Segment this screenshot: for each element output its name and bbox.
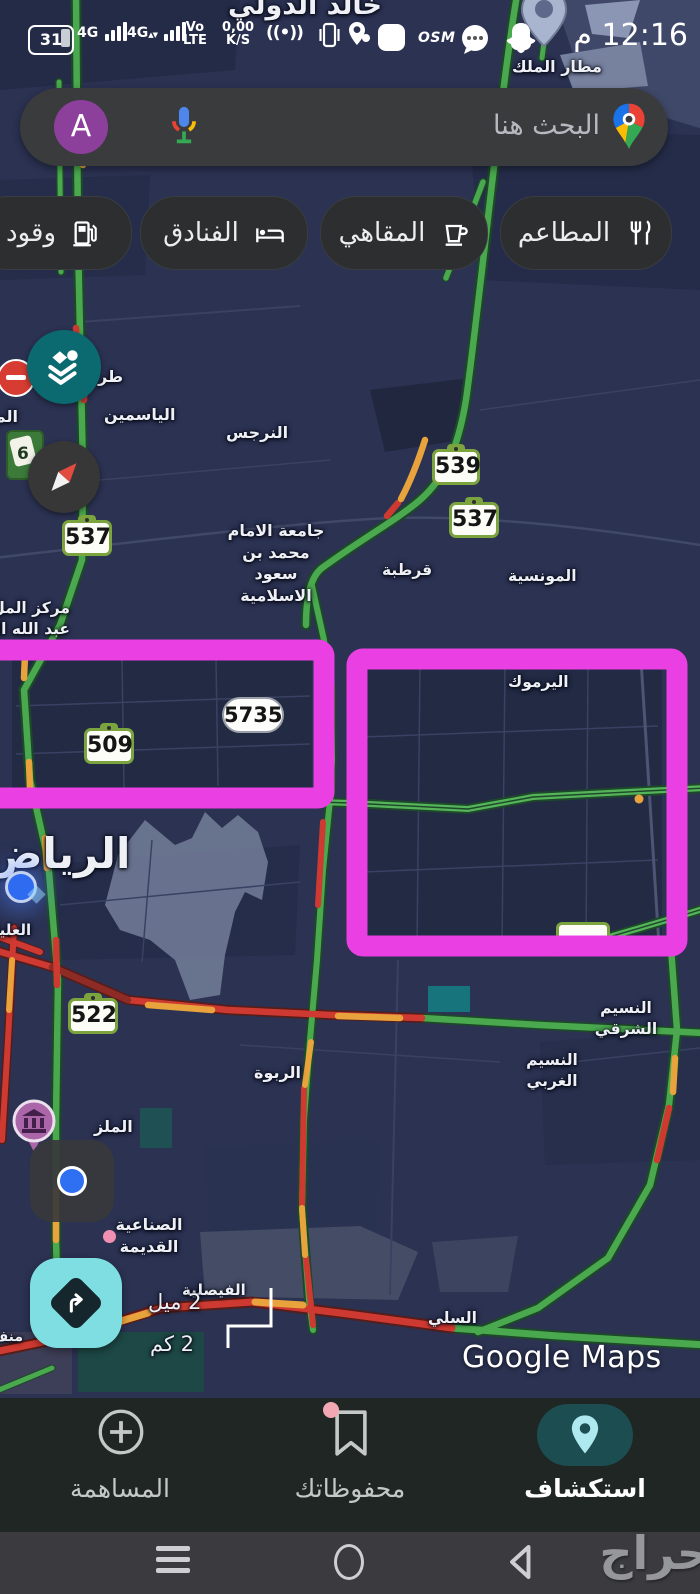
map-label-rabwah: الربوة [254,1062,301,1084]
google-maps-app: خالد الدولي مطار الملك طر الم الياسمين ا… [0,0,700,1594]
recents-button[interactable] [156,1546,190,1573]
nav-item-saved[interactable]: محفوظاتك [285,1402,415,1528]
my-location-dot-icon [57,1166,87,1196]
road-shield-522: 522 [68,998,118,1034]
google-maps-pin-icon [610,102,648,152]
volte-icon: VoLTE [183,21,207,47]
mic-icon[interactable] [166,104,202,150]
map-label-old-industrial: الصناعية القديمة [106,1214,192,1257]
directions-button[interactable] [30,1258,122,1348]
battery-icon: 31 [28,25,74,55]
snapchat-notification-icon [504,21,538,57]
map-label-malaz: الملز [94,1116,133,1138]
map-label-kafd: مركز المل عبد الله ال [0,598,70,640]
chip-restaurants[interactable]: المطاعم [500,196,672,270]
layers-button[interactable] [27,330,101,404]
map-label-bottom-partial: منف [0,1328,23,1347]
road-shield-537-center: 537 [449,502,499,538]
map-label-yarmouk: اليرموك [508,672,569,693]
signal-icon-2: 4G▲▼ [127,22,186,41]
saved-notification-dot [323,1402,339,1418]
map-label-yasmin: الياسمين [104,404,175,426]
map-label-faisaliyah: الفيصلية [182,1280,246,1300]
hotel-icon [255,219,285,247]
chip-cafes[interactable]: المقاهي [320,196,488,270]
fuel-icon [72,219,98,247]
haraj-watermark: حراج [560,1526,700,1580]
hotspot-icon: ((•)) [266,23,303,43]
map-label-olaya: العليا [0,920,31,940]
bottom-nav: المساهمة محفوظاتك استكشاف [0,1398,700,1532]
home-button[interactable] [334,1544,364,1580]
search-bar[interactable]: البحث هنا A [20,88,668,166]
android-nav-bar: حراج [0,1532,700,1594]
clock: 12:16 م [548,18,688,53]
poi-pink-dot[interactable] [103,1230,116,1243]
map-label-naseem-east: النسيم الشرقي [588,998,664,1040]
road-shield-5735: 5735 [222,697,284,733]
road-shield-539: 539 [432,449,480,485]
map-label-road-partial: طر [98,366,123,388]
signal-icon-1: 4G [77,22,127,41]
back-button[interactable] [506,1544,536,1580]
map-label-naseem-west: النسيم الغربي [514,1050,590,1092]
map-label-sulai: السلي [428,1308,477,1329]
map-label-university: جامعة الامام محمد بن سعود الاسلامية [222,520,330,606]
compass-button[interactable] [28,441,100,513]
osm-notification-icon: OSM [418,30,455,46]
map-label-munsiyah: المونسية [508,566,577,587]
my-location-button[interactable] [30,1140,114,1222]
avatar[interactable]: A [54,100,108,154]
nav-item-explore[interactable]: استكشاف [520,1402,650,1528]
bookmark-icon [331,1408,371,1458]
restaurant-icon [626,219,654,247]
chip-hotels[interactable]: الفنادق [140,196,308,270]
map-label-qurtuba: قرطبة [382,560,432,581]
map-label-edge-partial: الم [0,406,18,428]
road-shield-partial [556,922,610,954]
notification-dot-icon [362,34,370,42]
map-label-narjes: النرجس [226,422,288,444]
search-input[interactable]: البحث هنا [260,110,600,141]
chat-notification-icon [458,22,492,56]
contribute-icon [97,1408,145,1456]
cafe-icon [441,219,469,247]
explore-pin-icon [569,1414,601,1456]
layers-icon [43,346,85,388]
nav-item-contribute[interactable]: المساهمة [55,1402,185,1528]
vibrate-icon [318,20,340,50]
status-bar: 31 4G 4G▲▼ VoLTE 0,00K/S ((•)) OSM [0,18,700,62]
square-notification-icon [378,24,405,51]
turn-right-arrow-icon [62,1289,90,1317]
data-speed-indicator: 0,00K/S [222,21,254,47]
compass-icon [42,455,86,499]
chip-fuel[interactable]: وقود [0,196,132,270]
road-shield-509: 509 [84,728,134,764]
road-shield-537-left: 537 [62,520,112,556]
